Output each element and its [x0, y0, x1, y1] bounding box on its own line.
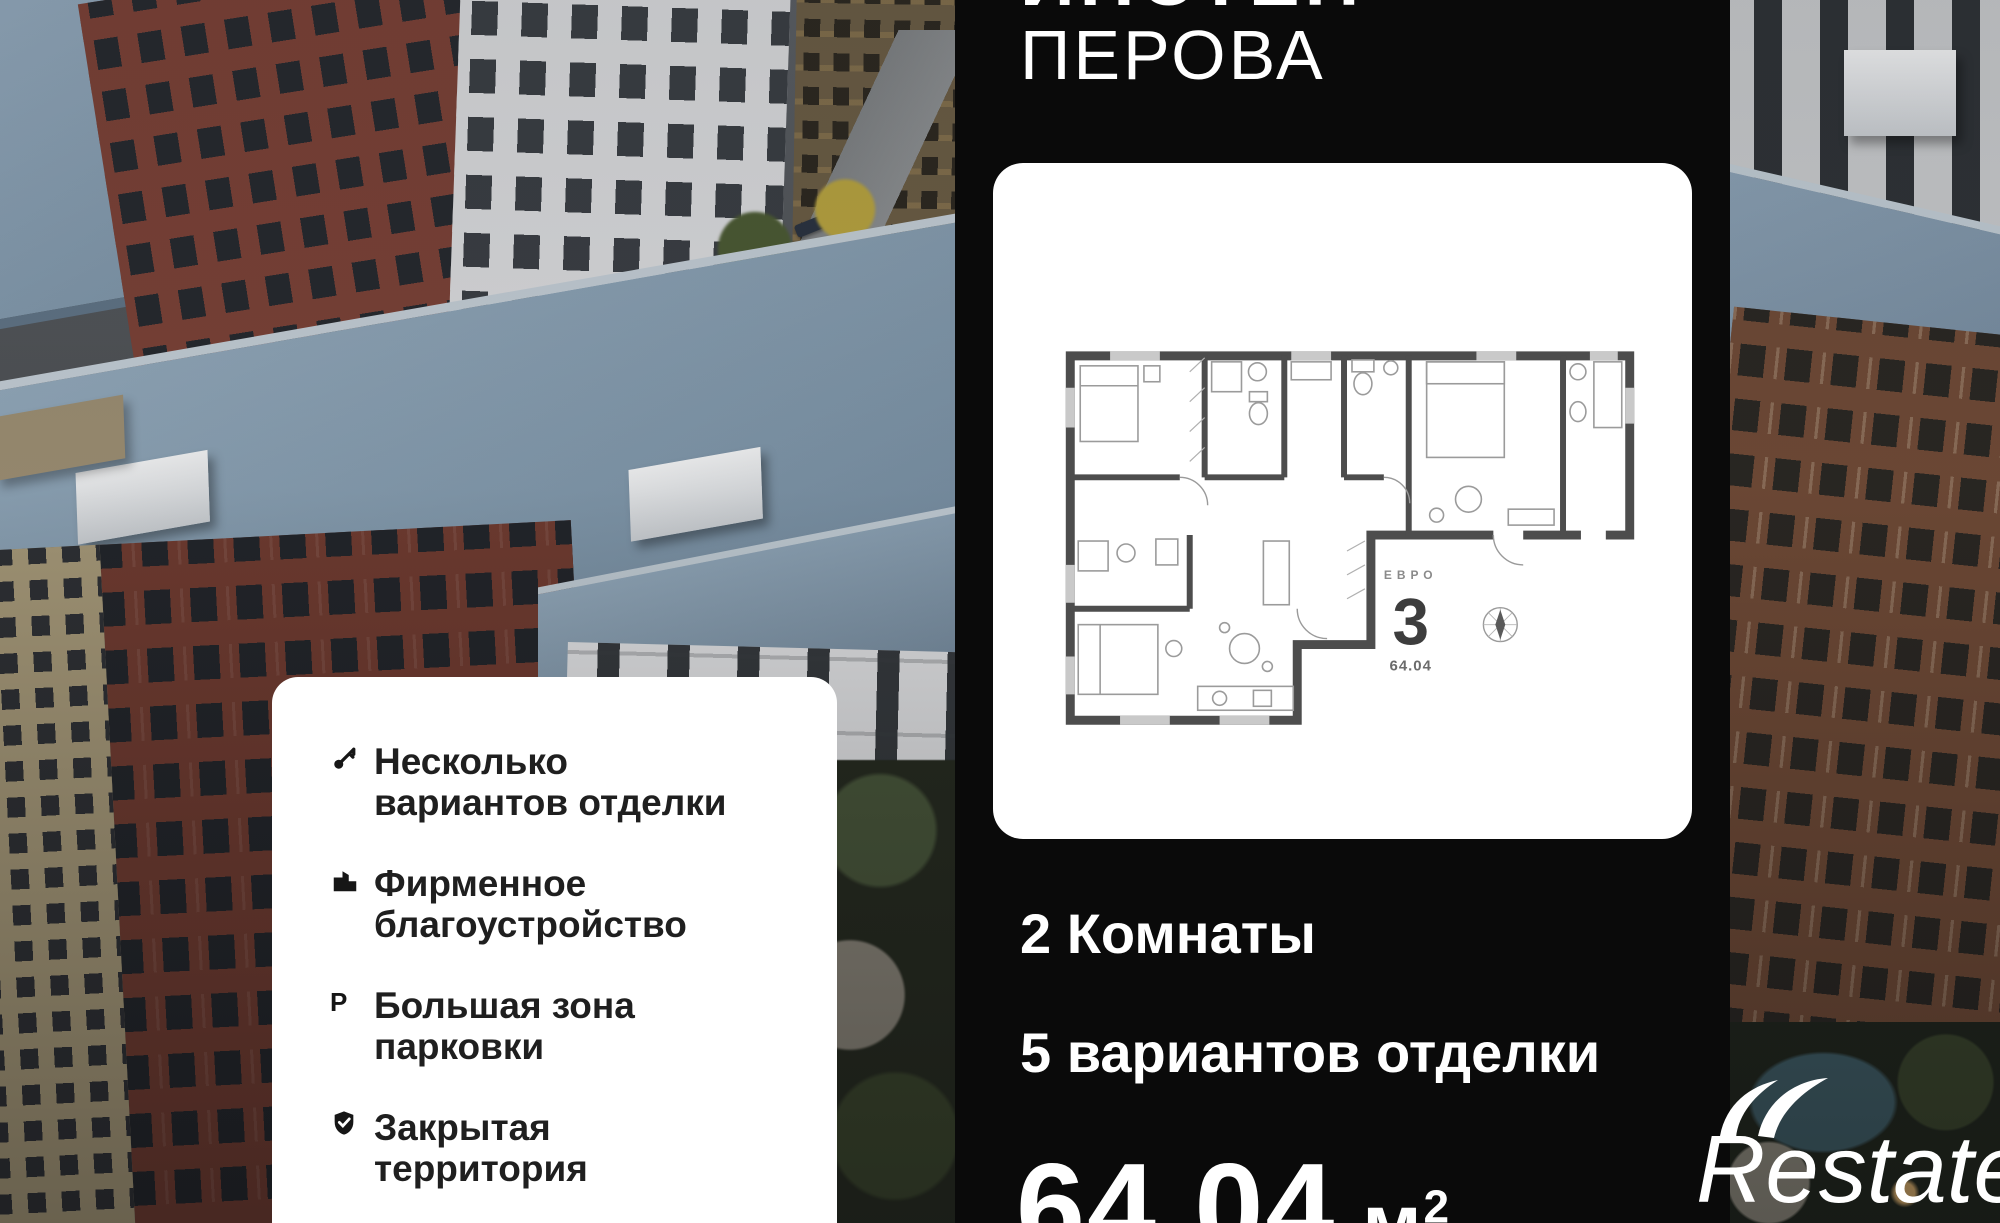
rooftop-box [1844, 50, 1956, 136]
feature-text: Закрытаятерритория [374, 1107, 588, 1189]
features-card: Нескольковариантов отделки Фирменноеблаг… [272, 677, 837, 1223]
rooms-count-text: 2 Комнаты [1020, 901, 1316, 966]
floorplan-drawing: ЕВРО 3 64.04 [1040, 328, 1658, 766]
key-icon [330, 743, 372, 773]
plan-area-label: 64.04 [1390, 657, 1432, 674]
plan-door-gaps [1297, 535, 1606, 609]
feature-text: Фирменноеблагоустройство [374, 863, 687, 945]
building-icon [330, 865, 372, 895]
right-building-facade [1728, 307, 2000, 1124]
finishing-options-text: 5 вариантов отделки [1020, 1020, 1600, 1085]
plan-partitions-vertical [1205, 356, 1563, 535]
feature-item: Закрытаятерритория [330, 1107, 837, 1189]
area-unit: м2 [1362, 1178, 1451, 1223]
shield-check-icon [330, 1109, 372, 1137]
feature-text: Нескольковариантов отделки [374, 741, 727, 823]
plan-partitions-horizontal [1070, 477, 1384, 608]
plan-outer-walls [1070, 356, 1629, 720]
area-text: 64.04м2 [1016, 1146, 1451, 1223]
area-value: 64.04 [1016, 1139, 1336, 1223]
rooftop-chimney [76, 450, 210, 545]
floorplan-card: ЕВРО 3 64.04 [993, 163, 1692, 839]
rooftop-chimney [628, 447, 762, 542]
real-estate-ad: ИНСТЕП ПЕРОВА [0, 0, 2000, 1223]
plan-door-arcs [1180, 477, 1523, 638]
feature-item: Нескольковариантов отделки [330, 741, 837, 823]
restate-logo: Restate [1696, 1078, 2000, 1223]
info-panel: ИНСТЕП ПЕРОВА [955, 0, 1730, 1223]
parking-icon: P [330, 987, 372, 1017]
complex-title-line2: ПЕРОВА [1020, 20, 1326, 90]
plan-rooms-number: 3 [1392, 586, 1429, 659]
feature-item: Фирменноеблагоустройство [330, 863, 837, 945]
area-superscript: 2 [1424, 1180, 1452, 1223]
compass-icon [1483, 608, 1517, 642]
right-building [1728, 0, 2000, 1223]
feature-item: P Большая зонапарковки [330, 985, 837, 1067]
feature-text: Большая зонапарковки [374, 985, 635, 1067]
plan-type-label: ЕВРО [1384, 568, 1438, 582]
logo-text: Restate [1696, 1122, 2000, 1218]
